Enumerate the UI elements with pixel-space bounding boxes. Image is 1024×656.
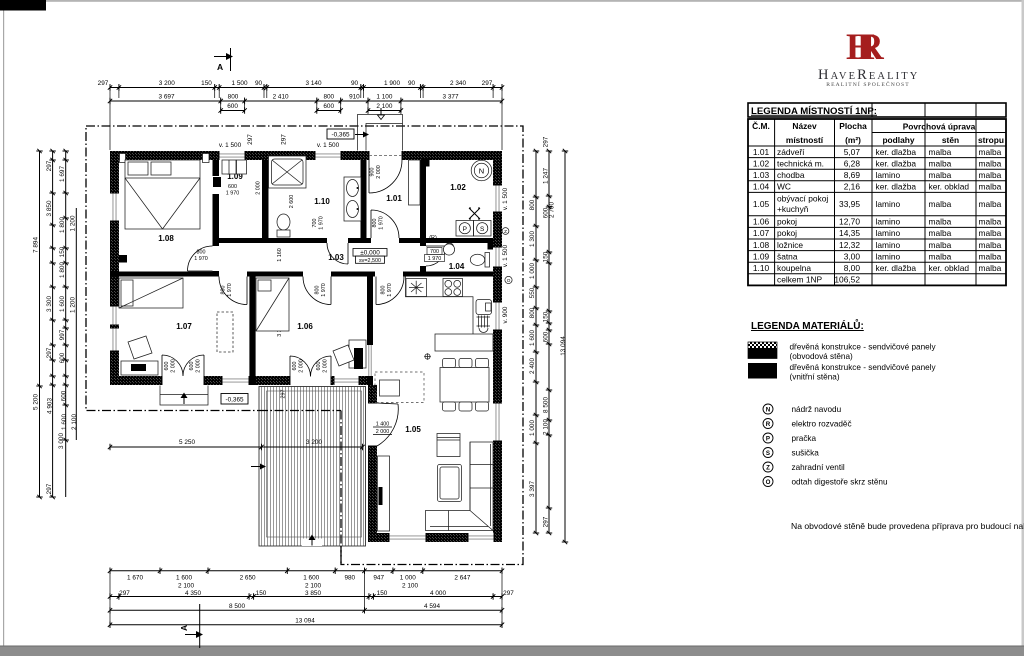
- svg-text:150: 150: [256, 590, 267, 597]
- svg-text:2 100: 2 100: [305, 583, 321, 590]
- svg-text:1 600: 1 600: [303, 574, 319, 581]
- svg-text:zahradní ventil: zahradní ventil: [792, 463, 845, 472]
- svg-text:1.06: 1.06: [753, 217, 770, 227]
- svg-text:150: 150: [201, 80, 212, 87]
- svg-text:150: 150: [543, 251, 550, 262]
- svg-text:P: P: [766, 435, 770, 442]
- svg-text:997: 997: [59, 329, 66, 340]
- svg-text:malba: malba: [979, 263, 1002, 273]
- svg-text:nádrž navodu: nádrž navodu: [792, 405, 842, 414]
- svg-text:3 697: 3 697: [159, 94, 175, 101]
- svg-text:3 377: 3 377: [443, 94, 459, 101]
- svg-text:3 850: 3 850: [46, 200, 53, 216]
- svg-text:600: 600: [228, 184, 237, 190]
- svg-text:1.01: 1.01: [386, 194, 402, 203]
- svg-text:malba: malba: [929, 147, 952, 157]
- svg-text:1 000: 1 000: [400, 574, 416, 581]
- svg-text:pokoj: pokoj: [777, 217, 797, 227]
- svg-text:8 500: 8 500: [229, 603, 245, 610]
- svg-text:malba: malba: [979, 158, 1002, 168]
- svg-text:koupelna: koupelna: [777, 263, 811, 273]
- svg-text:1 900: 1 900: [384, 80, 400, 87]
- svg-text:1.05: 1.05: [753, 199, 770, 209]
- svg-text:8,00: 8,00: [844, 263, 861, 273]
- svg-text:900: 900: [370, 168, 376, 177]
- svg-text:1 100: 1 100: [376, 94, 392, 101]
- svg-text:ker. obklad: ker. obklad: [929, 182, 970, 192]
- svg-text:2 000: 2 000: [256, 181, 262, 195]
- svg-text:1.01: 1.01: [753, 147, 770, 157]
- svg-text:1 970: 1 970: [379, 216, 385, 230]
- svg-text:Povrchová úprava: Povrchová úprava: [903, 122, 976, 132]
- svg-text:lamino: lamino: [876, 199, 901, 209]
- svg-text:sv=2,500: sv=2,500: [359, 258, 381, 264]
- svg-text:2 100: 2 100: [376, 103, 392, 110]
- svg-text:2 340: 2 340: [450, 80, 466, 87]
- svg-text:obývací pokoj: obývací pokoj: [777, 193, 828, 203]
- svg-text:1.05: 1.05: [405, 425, 421, 434]
- svg-text:1 970: 1 970: [226, 191, 240, 197]
- svg-text:6,28: 6,28: [844, 158, 861, 168]
- svg-text:(R): (R): [429, 235, 437, 241]
- svg-text:malba: malba: [979, 240, 1002, 250]
- svg-text:malba: malba: [929, 251, 952, 261]
- svg-text:8,69: 8,69: [844, 170, 861, 180]
- svg-text:297: 297: [119, 590, 130, 597]
- svg-text:R: R: [766, 421, 771, 428]
- svg-text:1.09: 1.09: [753, 251, 770, 261]
- svg-text:1.04: 1.04: [753, 182, 770, 192]
- svg-text:sušička: sušička: [792, 449, 820, 458]
- svg-text:1 300: 1 300: [529, 231, 536, 247]
- svg-text:600: 600: [292, 362, 298, 371]
- svg-text:malba: malba: [979, 217, 1002, 227]
- svg-text:-0,365: -0,365: [225, 396, 244, 403]
- svg-text:2 100: 2 100: [543, 419, 550, 435]
- svg-text:1.10: 1.10: [314, 197, 330, 206]
- svg-text:5,07: 5,07: [844, 147, 861, 157]
- svg-text:5 200: 5 200: [33, 394, 40, 410]
- svg-text:106,52: 106,52: [834, 275, 860, 285]
- svg-text:5 250: 5 250: [179, 439, 195, 446]
- svg-text:297: 297: [543, 136, 550, 147]
- svg-text:místností: místností: [786, 135, 824, 145]
- svg-text:1.02: 1.02: [450, 183, 466, 192]
- svg-text:12,70: 12,70: [839, 217, 860, 227]
- svg-text:odtah digestoře skrz stěnu: odtah digestoře skrz stěnu: [792, 478, 888, 487]
- svg-text:1 600: 1 600: [59, 296, 66, 312]
- svg-text:3,00: 3,00: [844, 251, 861, 261]
- svg-text:(obvodová stěna): (obvodová stěna): [790, 352, 854, 361]
- svg-text:ložnice: ložnice: [777, 240, 803, 250]
- svg-text:dřevěná konstrukce - sendvičov: dřevěná konstrukce - sendvičové panely: [790, 363, 937, 372]
- svg-text:600: 600: [323, 103, 334, 110]
- svg-text:v. 1 500: v. 1 500: [219, 142, 242, 149]
- svg-text:2 000: 2 000: [323, 359, 329, 373]
- svg-text:2 000: 2 000: [171, 359, 177, 373]
- svg-text:2 100: 2 100: [178, 583, 194, 590]
- svg-text:600: 600: [543, 331, 550, 342]
- svg-text:7 894: 7 894: [33, 237, 40, 253]
- svg-text:1.03: 1.03: [753, 170, 770, 180]
- svg-text:malba: malba: [979, 170, 1002, 180]
- svg-text:2 650: 2 650: [240, 574, 256, 581]
- svg-text:dřevěná konstrukce - sendvičov: dřevěná konstrukce - sendvičové panely: [790, 343, 937, 352]
- svg-text:1 600: 1 600: [176, 574, 192, 581]
- svg-text:1 400: 1 400: [376, 422, 390, 428]
- svg-text:malba: malba: [929, 217, 952, 227]
- svg-text:LEGENDA MÍSTNOSTÍ 1NP:: LEGENDA MÍSTNOSTÍ 1NP:: [751, 105, 877, 117]
- svg-text:2 100: 2 100: [71, 414, 78, 430]
- svg-text:2 410: 2 410: [273, 94, 289, 101]
- svg-text:980: 980: [344, 574, 355, 581]
- svg-text:3 200: 3 200: [306, 439, 322, 446]
- svg-text:-0,365: -0,365: [331, 132, 350, 139]
- svg-text:1.08: 1.08: [158, 234, 174, 243]
- svg-text:malba: malba: [979, 182, 1002, 192]
- svg-text:v. 1 500: v. 1 500: [317, 142, 340, 149]
- svg-text:1 200: 1 200: [70, 297, 77, 313]
- svg-text:2 647: 2 647: [454, 574, 470, 581]
- svg-text:Č.M.: Č.M.: [752, 120, 770, 131]
- svg-text:2 000: 2 000: [299, 359, 305, 373]
- svg-text:800: 800: [372, 219, 378, 228]
- svg-text:pračka: pračka: [792, 434, 817, 443]
- svg-text:4 350: 4 350: [185, 590, 201, 597]
- svg-text:1.04: 1.04: [449, 262, 465, 271]
- svg-text:3 200: 3 200: [159, 80, 175, 87]
- svg-text:600: 600: [316, 362, 322, 371]
- svg-text:LEGENDA MATERIÁLŮ:: LEGENDA MATERIÁLŮ:: [751, 318, 864, 332]
- svg-text:150: 150: [377, 590, 388, 597]
- svg-text:297: 297: [46, 160, 53, 171]
- svg-text:1.06: 1.06: [297, 322, 313, 331]
- svg-text:ker. dlažba: ker. dlažba: [876, 147, 917, 157]
- svg-text:12,32: 12,32: [839, 240, 860, 250]
- svg-text:P: P: [463, 226, 467, 233]
- svg-text:Plocha: Plocha: [839, 121, 867, 131]
- svg-text:podlahy: podlahy: [882, 135, 914, 145]
- svg-text:WC: WC: [777, 182, 791, 192]
- svg-text:1 970: 1 970: [319, 216, 325, 230]
- svg-text:1 970: 1 970: [321, 283, 327, 297]
- svg-text:malba: malba: [979, 199, 1002, 209]
- svg-text:2 700: 2 700: [549, 202, 556, 218]
- svg-text:1 970: 1 970: [227, 283, 233, 297]
- svg-text:1 247: 1 247: [543, 168, 550, 184]
- svg-text:malba: malba: [929, 170, 952, 180]
- svg-text:1.07: 1.07: [176, 322, 192, 331]
- svg-text:4 903: 4 903: [47, 398, 54, 414]
- svg-text:910: 910: [349, 94, 360, 101]
- svg-text:947: 947: [373, 574, 384, 581]
- svg-text:lamino: lamino: [876, 217, 901, 227]
- svg-text:800: 800: [228, 94, 239, 101]
- svg-text:ker. dlažba: ker. dlažba: [876, 158, 917, 168]
- svg-text:O: O: [507, 278, 511, 283]
- svg-text:297: 297: [46, 347, 53, 358]
- svg-text:šatna: šatna: [777, 251, 798, 261]
- svg-text:1 970: 1 970: [428, 256, 442, 262]
- svg-text:stěn: stěn: [942, 135, 959, 145]
- svg-text:3 140: 3 140: [306, 80, 322, 87]
- svg-text:A: A: [179, 625, 189, 631]
- svg-text:800: 800: [381, 286, 387, 295]
- svg-text:N: N: [766, 406, 771, 413]
- svg-text:4 000: 4 000: [430, 590, 446, 597]
- svg-text:zádveří: zádveří: [777, 147, 805, 157]
- svg-text:pokoj: pokoj: [777, 228, 797, 238]
- svg-text:2 100: 2 100: [402, 583, 418, 590]
- svg-text:700: 700: [312, 219, 318, 228]
- svg-text:A: A: [217, 62, 223, 72]
- svg-text:4 594: 4 594: [424, 603, 440, 610]
- svg-text:3 300: 3 300: [46, 296, 53, 312]
- svg-text:1 600: 1 600: [529, 330, 536, 346]
- svg-text:+kuchyň: +kuchyň: [777, 204, 809, 214]
- svg-text:90: 90: [408, 80, 416, 87]
- svg-text:13 094: 13 094: [295, 617, 315, 624]
- svg-text:N: N: [479, 167, 484, 176]
- svg-text:stropu: stropu: [978, 135, 1004, 145]
- svg-text:3 000: 3 000: [58, 433, 65, 449]
- svg-text:1 000: 1 000: [529, 420, 536, 436]
- svg-text:800: 800: [221, 286, 227, 295]
- svg-text:2 600: 2 600: [289, 195, 295, 209]
- svg-text:technická m.: technická m.: [777, 158, 824, 168]
- svg-text:600: 600: [164, 362, 170, 371]
- svg-text:chodba: chodba: [777, 170, 805, 180]
- svg-text:ker. obklad: ker. obklad: [929, 263, 970, 273]
- svg-text:malba: malba: [929, 228, 952, 238]
- svg-text:v. 1 500: v. 1 500: [502, 187, 509, 210]
- svg-text:(m²): (m²): [845, 135, 861, 145]
- svg-text:1.10: 1.10: [753, 263, 770, 273]
- svg-text:550: 550: [529, 287, 536, 298]
- svg-text:±0,000: ±0,000: [360, 250, 380, 257]
- svg-text:1.08: 1.08: [753, 240, 770, 250]
- svg-text:2 000: 2 000: [376, 429, 390, 435]
- svg-text:S: S: [766, 450, 770, 457]
- svg-text:800: 800: [315, 286, 321, 295]
- svg-text:3 397: 3 397: [529, 481, 536, 497]
- svg-text:1.03: 1.03: [328, 253, 344, 262]
- svg-text:elektro rozvaděč: elektro rozvaděč: [792, 420, 852, 429]
- svg-text:800: 800: [529, 199, 536, 210]
- svg-text:8 500: 8 500: [543, 397, 550, 413]
- svg-text:v. 900: v. 900: [502, 306, 509, 323]
- svg-text:297: 297: [46, 483, 53, 494]
- svg-text:800: 800: [197, 250, 206, 256]
- svg-text:Z: Z: [504, 229, 507, 234]
- svg-text:lamino: lamino: [876, 170, 901, 180]
- svg-text:PAVE5882: PAVE5882: [2, 1, 41, 10]
- svg-text:33,95: 33,95: [839, 199, 860, 209]
- svg-text:800: 800: [529, 307, 536, 318]
- svg-text:1 200: 1 200: [70, 215, 77, 231]
- svg-text:700: 700: [430, 249, 439, 255]
- svg-text:R: R: [857, 27, 885, 68]
- svg-text:1 670: 1 670: [127, 574, 143, 581]
- svg-text:O: O: [766, 479, 771, 486]
- svg-text:600: 600: [59, 352, 66, 363]
- svg-text:lamino: lamino: [876, 228, 901, 238]
- svg-text:297: 297: [281, 134, 288, 145]
- svg-text:ker. dlažba: ker. dlažba: [876, 182, 917, 192]
- svg-text:800: 800: [323, 94, 334, 101]
- svg-text:Z: Z: [766, 464, 770, 471]
- svg-text:1 970: 1 970: [194, 256, 208, 262]
- svg-text:malba: malba: [929, 240, 952, 250]
- svg-text:1 970: 1 970: [387, 283, 393, 297]
- svg-text:297: 297: [280, 390, 286, 399]
- svg-text:2 400: 2 400: [529, 358, 536, 374]
- svg-text:297: 297: [482, 80, 493, 87]
- svg-text:S: S: [480, 226, 485, 233]
- svg-text:ker. dlažba: ker. dlažba: [876, 263, 917, 273]
- svg-text:2,16: 2,16: [844, 182, 861, 192]
- svg-text:14,35: 14,35: [839, 228, 860, 238]
- svg-text:92: 92: [373, 385, 379, 391]
- svg-text:3 850: 3 850: [305, 590, 321, 597]
- svg-text:malba: malba: [979, 147, 1002, 157]
- svg-text:1 800: 1 800: [59, 217, 66, 233]
- svg-text:(vnitřní stěna): (vnitřní stěna): [790, 373, 840, 382]
- svg-text:1 697: 1 697: [59, 166, 66, 182]
- svg-text:150: 150: [59, 246, 66, 257]
- svg-text:malba: malba: [979, 251, 1002, 261]
- svg-text:lamino: lamino: [876, 240, 901, 250]
- svg-text:90: 90: [351, 80, 359, 87]
- svg-text:1.02: 1.02: [753, 158, 770, 168]
- svg-text:celkem 1NP: celkem 1NP: [777, 275, 823, 285]
- svg-text:malba: malba: [929, 158, 952, 168]
- svg-text:297: 297: [503, 590, 514, 597]
- svg-text:297: 297: [247, 134, 254, 145]
- svg-text:600: 600: [227, 103, 238, 110]
- svg-text:2 000: 2 000: [196, 359, 202, 373]
- svg-text:REALITNÍ SPOLEČNOST: REALITNÍ SPOLEČNOST: [826, 80, 910, 88]
- svg-text:600: 600: [61, 390, 68, 401]
- svg-text:malba: malba: [929, 199, 952, 209]
- svg-text:lamino: lamino: [876, 251, 901, 261]
- svg-text:150: 150: [543, 311, 550, 322]
- svg-text:Název: Název: [792, 121, 817, 131]
- svg-text:malba: malba: [979, 228, 1002, 238]
- svg-text:90: 90: [255, 80, 263, 87]
- svg-text:v. 1 500: v. 1 500: [502, 244, 509, 267]
- svg-text:1 500: 1 500: [232, 80, 248, 87]
- svg-text:1 600: 1 600: [61, 414, 68, 430]
- svg-text:1.07: 1.07: [753, 228, 770, 238]
- svg-text:2 000: 2 000: [376, 165, 382, 179]
- svg-text:297: 297: [98, 80, 109, 87]
- svg-text:1 000: 1 000: [529, 263, 536, 279]
- svg-text:1 800: 1 800: [59, 262, 66, 278]
- svg-text:13 094: 13 094: [560, 336, 567, 356]
- svg-text:Na obvodové stěně bude provede: Na obvodové stěně bude provedena příprav…: [791, 521, 1024, 531]
- svg-text:297: 297: [543, 516, 550, 527]
- svg-text:600: 600: [189, 362, 195, 371]
- svg-text:1 160: 1 160: [277, 248, 283, 262]
